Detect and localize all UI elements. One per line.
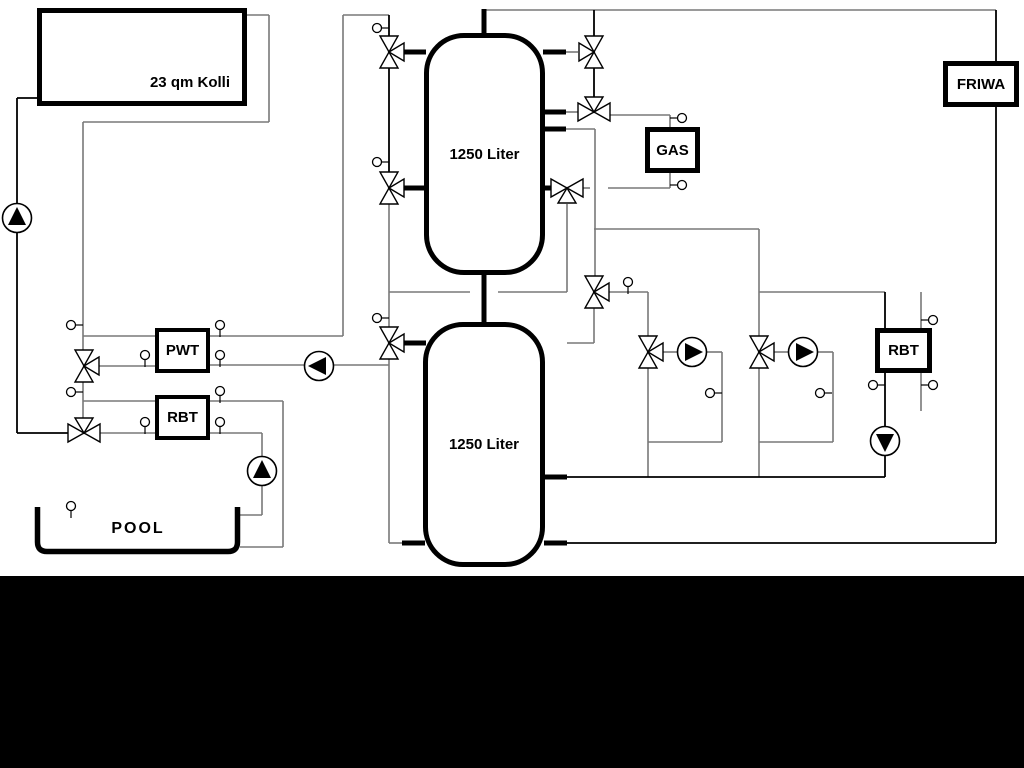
sensor-bulb [141, 351, 150, 360]
sensor-bulb [678, 114, 687, 123]
pump-icon [871, 427, 900, 456]
solar-collector-box: 23 qm Kolli [37, 8, 247, 106]
sensor-bulb [67, 321, 76, 330]
temperature-sensor-icon [141, 351, 150, 368]
temperature-sensor-icon [921, 381, 938, 390]
three-way-valve-icon [380, 172, 404, 204]
friwa-label: FRIWA [957, 76, 1005, 93]
sensor-bulb [216, 387, 225, 396]
sensor-bulb [678, 181, 687, 190]
sensor-bulb [816, 389, 825, 398]
solar-collector-label: 23 qm Kolli [150, 74, 230, 91]
sensor-bulb [141, 418, 150, 427]
sensor-bulb [373, 158, 382, 167]
temperature-sensor-icon [670, 181, 687, 190]
gas-boiler-box: GAS [645, 127, 700, 173]
sensor-bulb [929, 381, 938, 390]
rbt-left-label: RBT [167, 409, 198, 426]
sensor-bulb [67, 502, 76, 511]
three-way-valve-icon [75, 350, 99, 382]
temperature-sensor-icon [67, 321, 84, 330]
sensor-bulb [706, 389, 715, 398]
temperature-sensor-icon [67, 502, 76, 519]
temperature-sensor-icon [67, 388, 84, 397]
sensor-bulb [373, 24, 382, 33]
sensor-bulb [929, 316, 938, 325]
rbt-right-label: RBT [888, 342, 919, 359]
three-way-valve-icon [578, 97, 610, 121]
temperature-sensor-icon [373, 158, 390, 167]
three-way-valve-icon [579, 36, 603, 68]
sensor-bulb [216, 351, 225, 360]
buffer-tank-top-label: 1250 Liter [449, 146, 519, 163]
three-way-valve-icon [750, 336, 774, 368]
buffer-tank-bottom-box: 1250 Liter [423, 322, 545, 567]
pool-label: POOL [88, 520, 188, 538]
temperature-sensor-icon [373, 314, 390, 323]
pump-icon [678, 338, 707, 367]
pump-icon [305, 352, 334, 381]
temperature-sensor-icon [670, 114, 687, 123]
temperature-sensor-icon [141, 418, 150, 435]
friwa-fresh-water-box: FRIWA [943, 61, 1019, 107]
buffer-tank-top-box: 1250 Liter [424, 33, 545, 275]
buffer-tank-bottom-label: 1250 Liter [449, 436, 519, 453]
rbt-right-heat-exchanger-box: RBT [875, 328, 932, 373]
sensor-bulb [869, 381, 878, 390]
three-way-valve-icon [380, 36, 404, 68]
pump-icon [3, 204, 32, 233]
temperature-sensor-icon [706, 389, 723, 398]
pump-icon [248, 457, 277, 486]
gas-boiler-label: GAS [656, 142, 689, 159]
temperature-sensor-icon [216, 418, 225, 435]
sensor-bulb [373, 314, 382, 323]
heating-schematic-canvas: 23 qm Kolli 1250 Liter 1250 Liter PWT RB… [0, 0, 1024, 768]
temperature-sensor-icon [869, 381, 886, 390]
sensor-bulb [624, 278, 633, 287]
sensor-bulb [216, 321, 225, 330]
temperature-sensor-icon [816, 389, 833, 398]
three-way-valve-icon [68, 418, 100, 442]
three-way-valve-icon [639, 336, 663, 368]
pwt-heat-exchanger-box: PWT [155, 328, 210, 373]
bottom-black-band [0, 576, 1024, 768]
three-way-valve-icon [551, 179, 583, 203]
temperature-sensor-icon [921, 316, 938, 325]
rbt-left-heat-exchanger-box: RBT [155, 395, 210, 440]
three-way-valve-icon [380, 327, 404, 359]
sensor-bulb [67, 388, 76, 397]
pump-icon [789, 338, 818, 367]
pwt-label: PWT [166, 342, 199, 359]
sensor-bulb [216, 418, 225, 427]
temperature-sensor-icon [216, 321, 225, 338]
temperature-sensor-icon [373, 24, 390, 33]
three-way-valve-icon [585, 276, 609, 308]
